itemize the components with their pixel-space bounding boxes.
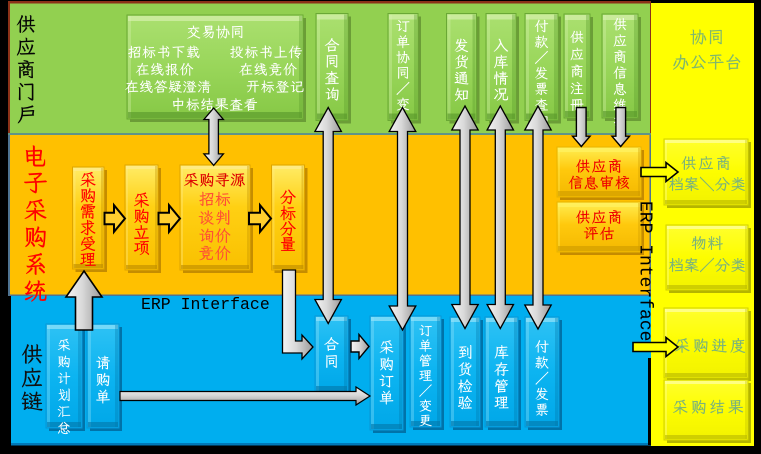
svg-text:ERP Interface: ERP Interface (635, 201, 655, 341)
svg-text:ERP Interface: ERP Interface (141, 295, 270, 314)
